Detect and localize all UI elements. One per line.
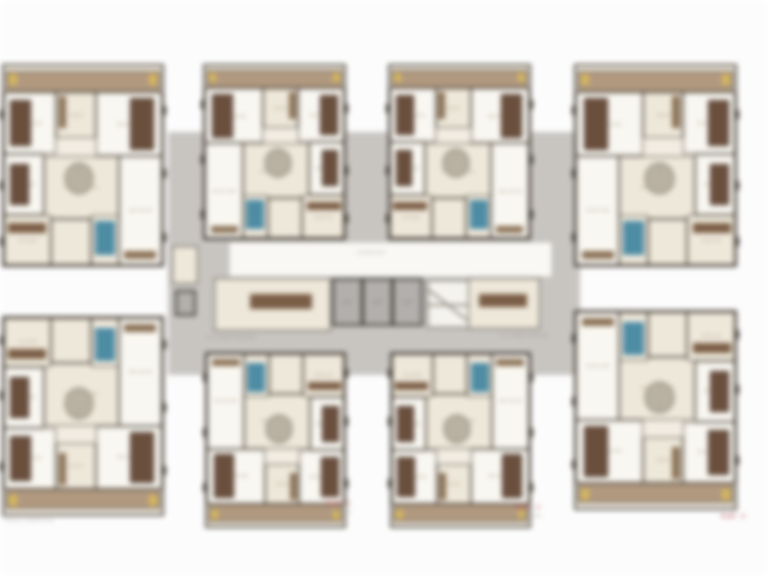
bed-icon bbox=[710, 164, 729, 206]
bed-icon bbox=[10, 436, 31, 481]
motif-icon bbox=[267, 416, 290, 442]
motif-icon bbox=[646, 383, 673, 412]
bed-icon bbox=[214, 454, 235, 499]
window-tick bbox=[0, 391, 4, 400]
bed-icon bbox=[584, 98, 608, 150]
door-icon bbox=[581, 74, 589, 85]
unit-3-foyer bbox=[432, 198, 467, 238]
wardrobe-icon bbox=[582, 251, 614, 259]
room-label: BED ROOM bbox=[586, 208, 609, 213]
window-tick bbox=[0, 237, 4, 246]
unit-4-foyer bbox=[648, 219, 688, 265]
motif-icon bbox=[266, 150, 290, 176]
door-icon bbox=[149, 74, 157, 85]
wardrobe-icon bbox=[211, 226, 239, 233]
window-tick bbox=[572, 397, 576, 406]
door-icon bbox=[722, 489, 730, 500]
unit-6-kitchen: KITCHEN bbox=[303, 354, 344, 397]
wardrobe-icon bbox=[289, 92, 296, 120]
unit-3-bedroom-4: BED ROOM bbox=[491, 143, 529, 238]
window-tick bbox=[572, 334, 576, 343]
unit-6: BED ROOMTOILETBED ROOMBED ROOMLIVING / D… bbox=[205, 352, 346, 528]
window-tick bbox=[735, 456, 739, 465]
wardrobe-icon bbox=[59, 453, 67, 484]
room-label: KITCHEN bbox=[403, 373, 422, 378]
unit-2-balcony bbox=[207, 70, 342, 88]
window-tick bbox=[344, 214, 348, 223]
flat-label-2: FLAT - 3 bbox=[516, 505, 540, 511]
shower-icon bbox=[471, 363, 489, 392]
window-tick bbox=[735, 385, 739, 394]
corridor-label: CORRIDOR bbox=[356, 250, 385, 255]
shower-icon bbox=[247, 363, 265, 392]
counter-icon bbox=[393, 202, 426, 211]
window-tick bbox=[0, 462, 4, 471]
unit-5-balcony bbox=[6, 489, 159, 510]
shower-icon bbox=[470, 200, 488, 229]
unit-1-foyer bbox=[51, 219, 91, 265]
unit-7: BED ROOMTOILETBED ROOMBED ROOMLIVING / D… bbox=[390, 352, 531, 528]
lift-label: LIFT bbox=[343, 300, 352, 305]
window-tick bbox=[735, 181, 739, 190]
room-label: BED ROOM bbox=[586, 363, 609, 368]
unit-8-bedroom-4: BED ROOM bbox=[576, 312, 619, 420]
window-tick bbox=[0, 336, 4, 345]
unit-4-bedroom-4: BED ROOM bbox=[576, 156, 619, 265]
staircase bbox=[427, 280, 469, 328]
window-tick bbox=[162, 403, 166, 412]
unit-1-balcony bbox=[6, 71, 159, 92]
flat-label-1: FLAT - 2 bbox=[326, 501, 350, 507]
unit-5-kitchen: KITCHEN bbox=[4, 318, 51, 367]
shower-icon bbox=[623, 221, 644, 255]
room-label: TOILET bbox=[273, 106, 288, 111]
window-tick bbox=[201, 210, 205, 219]
bed-icon bbox=[322, 406, 338, 442]
bed-icon bbox=[10, 377, 29, 418]
unit-4: BED ROOMTOILETBED ROOMBED ROOMLIVING / D… bbox=[574, 64, 737, 267]
unit-6-bedroom-4: BED ROOM bbox=[207, 354, 244, 449]
lift-2: LIFT bbox=[362, 278, 393, 326]
bed-icon bbox=[10, 100, 31, 146]
window-tick bbox=[162, 233, 166, 242]
room-label: BED ROOM bbox=[499, 399, 522, 404]
room-label: TOILET bbox=[446, 106, 461, 111]
window-tick bbox=[529, 210, 533, 219]
wardrobe-icon bbox=[290, 473, 297, 501]
counter-icon bbox=[395, 382, 428, 391]
room-label: KITCHEN bbox=[18, 238, 37, 243]
wardrobe-icon bbox=[124, 251, 156, 259]
unit-8: BED ROOMTOILETBED ROOMBED ROOMLIVING / D… bbox=[574, 310, 737, 510]
door-icon bbox=[209, 73, 216, 82]
bed-icon bbox=[130, 432, 154, 483]
wardrobe-icon bbox=[213, 359, 240, 366]
corridor-shaft bbox=[175, 290, 196, 316]
bed-icon bbox=[708, 100, 729, 146]
unit-7-balcony bbox=[394, 504, 527, 522]
door-icon bbox=[518, 73, 525, 82]
door-icon bbox=[149, 495, 157, 506]
room-label: KITCHEN bbox=[18, 340, 37, 345]
unit-8-foyer bbox=[648, 312, 688, 357]
window-tick bbox=[344, 417, 348, 426]
motif-icon bbox=[646, 164, 673, 194]
unit-5: BED ROOMTOILETBED ROOMBED ROOMLIVING / D… bbox=[2, 316, 164, 516]
wardrobe-icon bbox=[439, 473, 446, 501]
room-label: KITCHEN bbox=[401, 214, 420, 219]
bed-icon bbox=[708, 430, 729, 475]
unit-8-kitchen: KITCHEN bbox=[687, 312, 735, 361]
door-icon bbox=[9, 495, 17, 506]
unit-1: BED ROOMTOILETBED ROOMBED ROOMLIVING / D… bbox=[2, 64, 164, 267]
bed-icon bbox=[212, 94, 233, 139]
window-tick bbox=[0, 110, 4, 119]
wardrobe-icon bbox=[496, 359, 523, 366]
window-tick bbox=[344, 479, 348, 488]
unit-7-foyer bbox=[433, 354, 467, 394]
room-label: TOILET bbox=[274, 481, 289, 486]
window-tick bbox=[529, 100, 533, 109]
flat-sublabel-1: EAST FACING bbox=[325, 509, 351, 514]
room-label: TOILET bbox=[447, 481, 462, 486]
stair-flight-line bbox=[427, 304, 469, 306]
unit-4-balcony bbox=[578, 71, 732, 92]
unit-8-balcony bbox=[578, 483, 732, 504]
bed-icon bbox=[502, 454, 523, 499]
unit-6-balcony bbox=[209, 504, 342, 522]
room-label: BED ROOM bbox=[212, 188, 235, 193]
passage-caption-right: 6'-6" WIDE PASSAGE bbox=[500, 333, 549, 338]
door-icon bbox=[722, 74, 730, 85]
room-label: TOILET bbox=[655, 458, 670, 463]
door-icon bbox=[333, 73, 340, 82]
service-counter-1 bbox=[250, 294, 312, 309]
corridor-hall bbox=[228, 241, 553, 278]
room-label: KITCHEN bbox=[314, 373, 333, 378]
room-label: TOILET bbox=[68, 464, 83, 469]
window-tick bbox=[388, 369, 392, 378]
room-label: BED ROOM bbox=[499, 188, 522, 193]
bed-icon bbox=[710, 371, 729, 412]
shower-icon bbox=[623, 322, 644, 355]
window-tick bbox=[203, 428, 207, 437]
window-tick bbox=[0, 181, 4, 190]
room-label: BED ROOM bbox=[129, 208, 152, 213]
counter-icon bbox=[8, 223, 46, 233]
window-tick bbox=[529, 483, 533, 492]
window-tick bbox=[572, 460, 576, 469]
passage-caption-left: 6'-6" WIDE PASSAGE bbox=[207, 335, 256, 340]
room-label: KITCHEN bbox=[314, 214, 333, 219]
lift-1: LIFT bbox=[332, 278, 363, 326]
window-tick bbox=[386, 166, 390, 175]
motif-icon bbox=[444, 150, 468, 176]
counter-icon bbox=[693, 343, 731, 353]
unit-3: BED ROOMTOILETBED ROOMBED ROOMLIVING / D… bbox=[388, 64, 531, 240]
room-label: KITCHEN bbox=[702, 238, 721, 243]
unit-7-kitchen: KITCHEN bbox=[392, 354, 433, 397]
shower-icon bbox=[95, 328, 116, 361]
floor-plan: CORRIDOR 6'-6" WIDE PASSAGE 6'-6" WIDE P… bbox=[0, 0, 768, 576]
window-tick bbox=[201, 100, 205, 109]
corner-note: TYPICAL FLOOR PLAN bbox=[3, 518, 53, 523]
window-tick bbox=[344, 166, 348, 175]
wardrobe-icon bbox=[59, 96, 67, 128]
corridor-utility-room bbox=[172, 246, 198, 284]
unit-5-foyer bbox=[51, 318, 91, 363]
bed-icon bbox=[501, 94, 522, 139]
window-tick bbox=[162, 169, 166, 178]
counter-icon bbox=[693, 223, 731, 233]
bed-icon bbox=[322, 150, 339, 186]
unit-5-bedroom-4: BED ROOM bbox=[119, 318, 162, 426]
window-tick bbox=[162, 340, 166, 349]
window-tick bbox=[529, 428, 533, 437]
wardrobe-icon bbox=[672, 447, 680, 478]
room-label: KITCHEN bbox=[702, 334, 721, 339]
bed-icon bbox=[396, 95, 414, 135]
lift-3: LIFT bbox=[392, 278, 423, 326]
wardrobe-icon bbox=[582, 318, 614, 326]
window-tick bbox=[162, 106, 166, 115]
door-icon bbox=[9, 74, 17, 85]
bed-icon bbox=[10, 164, 29, 206]
bed-icon bbox=[397, 457, 415, 497]
service-counter-2 bbox=[479, 294, 527, 307]
window-tick bbox=[529, 373, 533, 382]
door-icon bbox=[396, 510, 403, 519]
window-tick bbox=[572, 169, 576, 178]
window-tick bbox=[735, 330, 739, 339]
door-icon bbox=[394, 73, 401, 82]
motif-icon bbox=[66, 389, 93, 418]
unit-1-bedroom-4: BED ROOM bbox=[119, 156, 162, 265]
bed-icon bbox=[321, 457, 339, 497]
window-tick bbox=[201, 155, 205, 164]
wardrobe-icon bbox=[438, 92, 445, 120]
window-tick bbox=[572, 233, 576, 242]
shower-icon bbox=[95, 221, 116, 255]
window-tick bbox=[344, 369, 348, 378]
bed-icon bbox=[320, 95, 338, 135]
window-tick bbox=[388, 479, 392, 488]
unit-2: BED ROOMTOILETBED ROOMBED ROOMLIVING / D… bbox=[203, 64, 346, 240]
counter-icon bbox=[307, 202, 340, 211]
wardrobe-icon bbox=[124, 324, 156, 332]
wardrobe-icon bbox=[672, 96, 680, 128]
unit-2-bedroom-4: BED ROOM bbox=[205, 143, 243, 238]
bed-icon bbox=[397, 406, 413, 442]
door-icon bbox=[581, 489, 589, 500]
unit-7-bedroom-4: BED ROOM bbox=[492, 354, 529, 449]
window-tick bbox=[344, 104, 348, 113]
counter-icon bbox=[308, 382, 341, 391]
door-icon bbox=[211, 510, 218, 519]
window-tick bbox=[735, 237, 739, 246]
bed-icon bbox=[396, 150, 413, 186]
room-label: BED ROOM bbox=[129, 369, 152, 374]
window-tick bbox=[162, 466, 166, 475]
bed-icon bbox=[130, 98, 154, 150]
window-tick bbox=[386, 104, 390, 113]
window-tick bbox=[203, 483, 207, 492]
window-tick bbox=[203, 373, 207, 382]
room-label: BED ROOM bbox=[214, 399, 237, 404]
room-label: TOILET bbox=[655, 112, 670, 117]
flat-label-3: FLAT - 4 bbox=[721, 514, 745, 520]
shower-icon bbox=[246, 200, 264, 229]
flat-sublabel-2: WEST FACING bbox=[514, 513, 541, 518]
window-tick bbox=[735, 110, 739, 119]
wardrobe-icon bbox=[496, 226, 524, 233]
window-tick bbox=[386, 214, 390, 223]
motif-icon bbox=[445, 416, 468, 442]
unit-6-foyer bbox=[269, 354, 303, 394]
window-tick bbox=[388, 417, 392, 426]
unit-2-foyer bbox=[268, 198, 303, 238]
window-tick bbox=[572, 106, 576, 115]
counter-icon bbox=[8, 349, 46, 359]
lift-label: LIFT bbox=[373, 300, 382, 305]
window-tick bbox=[529, 155, 533, 164]
room-label: TOILET bbox=[68, 112, 83, 117]
lift-label: LIFT bbox=[403, 300, 412, 305]
unit-3-balcony bbox=[392, 70, 527, 88]
bed-icon bbox=[584, 426, 608, 477]
